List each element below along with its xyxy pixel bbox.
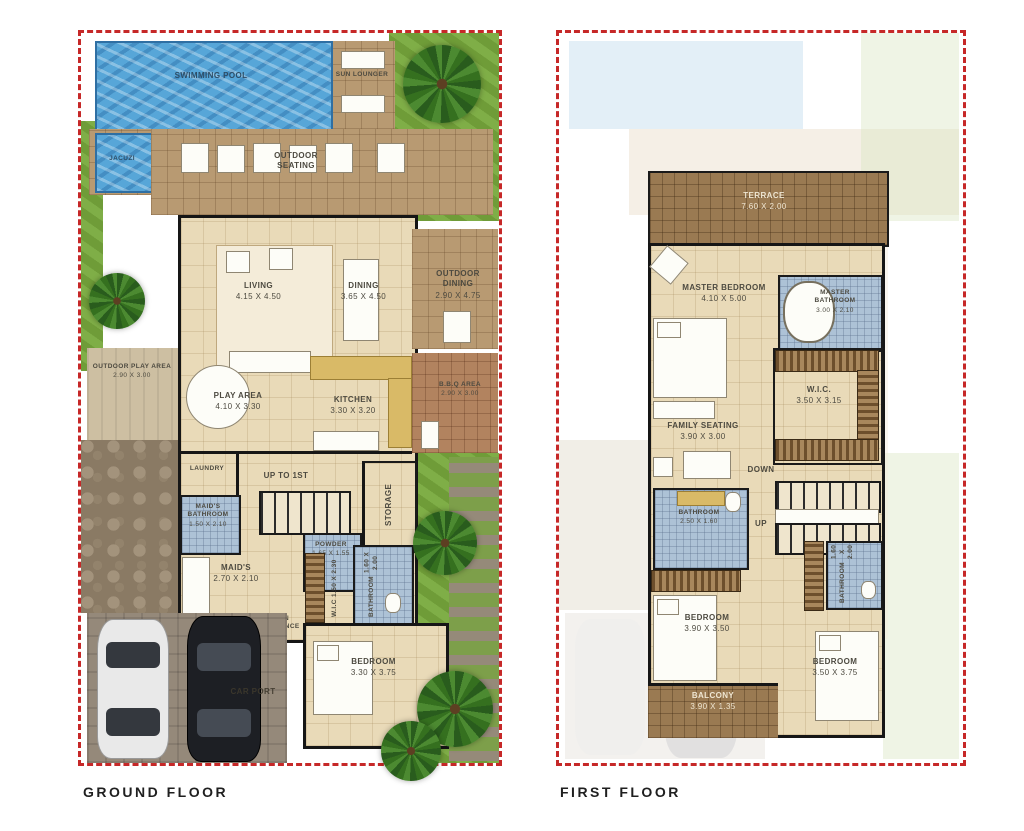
ground-bedroom-label: BEDROOM3.30 X 3.75: [326, 657, 421, 679]
outdoor-chair: [377, 143, 405, 173]
wic-closet: [857, 370, 879, 442]
armchair: [269, 248, 293, 270]
first-bedroom-left-label: BEDROOM3.90 X 3.50: [667, 613, 747, 635]
toilet: [861, 581, 876, 599]
toilet: [385, 593, 401, 613]
ghost-grass: [883, 453, 959, 759]
ghost-white-car: [575, 619, 645, 755]
outdoor-seating-label: OUTDOOR SEATING: [256, 151, 336, 172]
wall: [178, 451, 412, 454]
first-bathroom-right-label: BATHROOM1.60 X 2.00: [831, 543, 855, 603]
wic-closet: [305, 553, 325, 623]
ghost-path: [559, 440, 654, 610]
family-chair: [653, 457, 673, 477]
cobble-path: [81, 440, 178, 613]
jacuzzi-label: JACUZI: [93, 155, 151, 163]
bbq-grill: [421, 421, 439, 449]
vanity: [677, 491, 725, 506]
laundry-label: LAUNDRY: [179, 465, 235, 473]
ghost-pool: [569, 41, 803, 129]
wic-label: W.I.C1.50 X 2.30: [324, 557, 346, 619]
first-bedroom-right-label: BEDROOM3.50 X 3.75: [795, 657, 875, 679]
storage-label: STORAGE: [377, 473, 401, 537]
wic-closet: [775, 350, 879, 372]
pillow: [819, 635, 841, 651]
play-area-label: PLAY AREA4.10 X 3.30: [193, 391, 283, 413]
sun-lounger-label: SUN LOUNGER: [327, 71, 397, 79]
car-rear-window: [197, 709, 252, 737]
car-port-label: CAR PORT: [213, 687, 293, 697]
bbq-label: B.B.Q AREA2.90 X 3.00: [425, 381, 495, 399]
master-bedroom-label: MASTER BEDROOM4.10 X 5.00: [679, 283, 769, 305]
ground-bathroom-label: BATHROOM1.60 X 2.00: [361, 551, 383, 617]
first-floor-title: FIRST FLOOR: [560, 784, 681, 800]
swimming-pool: [95, 41, 333, 133]
white-car: [97, 619, 169, 759]
master-bathroom-label: MASTER BATHROOM3.00 X 2.10: [799, 289, 871, 315]
down-label: DOWN: [721, 465, 801, 475]
sun-lounger: [341, 95, 385, 113]
outdoor-play-label: OUTDOOR PLAY AREA2.90 X 3.00: [89, 363, 175, 381]
outdoor-play-deck: [87, 348, 178, 440]
first-floor-plot-boundary: TERRACE7.60 X 2.00 MASTER BEDROOM4.10 X …: [556, 30, 966, 766]
palm-tree: [413, 511, 477, 575]
sofa: [229, 351, 311, 373]
wic-closet: [775, 439, 879, 461]
bedroom-closet: [651, 570, 741, 592]
palm-tree: [381, 721, 441, 781]
living-label: LIVING4.15 X 4.50: [216, 281, 301, 303]
kitchen-counter: [310, 356, 412, 380]
outdoor-dining-table: [443, 311, 471, 343]
car-rear-window: [106, 708, 159, 736]
bedroom-closet: [804, 541, 824, 611]
first-bathroom-left-label: BATHROOM2.50 X 1.60: [655, 509, 743, 527]
car-windshield: [197, 643, 252, 671]
kitchen-label: KITCHEN3.30 X 3.20: [308, 395, 398, 417]
armchair: [226, 251, 250, 273]
palm-tree: [403, 45, 481, 123]
pillow: [657, 322, 681, 338]
ground-floor-plot-boundary: SWIMMING POOL SUN LOUNGER JACUZI OUTDOOR…: [78, 30, 502, 766]
balcony-label: BALCONY3.90 X 1.35: [663, 691, 763, 713]
outdoor-chair: [181, 143, 209, 173]
stairs-label: UP TO 1ST: [251, 471, 321, 481]
stove: [313, 431, 379, 451]
palm-tree: [89, 273, 145, 329]
family-seating-label: FAMILY SEATING3.90 X 3.00: [663, 421, 743, 443]
terrace-label: TERRACE7.60 X 2.00: [709, 191, 819, 213]
staircase: [259, 491, 351, 535]
maids-room-label: MAID'S2.70 X 2.10: [191, 563, 281, 585]
swimming-pool-label: SWIMMING POOL: [141, 71, 281, 81]
outdoor-dining-label: OUTDOOR DINING2.90 X 4.75: [421, 269, 495, 301]
maids-bathroom-label: MAID'S BATHROOM1.50 X 2.10: [179, 503, 237, 529]
dining-label: DINING3.65 X 4.50: [326, 281, 401, 303]
ground-floor-title: GROUND FLOOR: [83, 784, 228, 800]
floor-plan-sheet: { "ground": { "title": "GROUND FLOOR", "…: [0, 0, 1024, 831]
car-windshield: [106, 642, 159, 668]
wic-label: W.I.C.3.50 X 3.15: [781, 385, 857, 407]
family-sofa: [653, 401, 715, 419]
sun-lounger: [341, 51, 385, 69]
outdoor-chair: [217, 145, 245, 173]
